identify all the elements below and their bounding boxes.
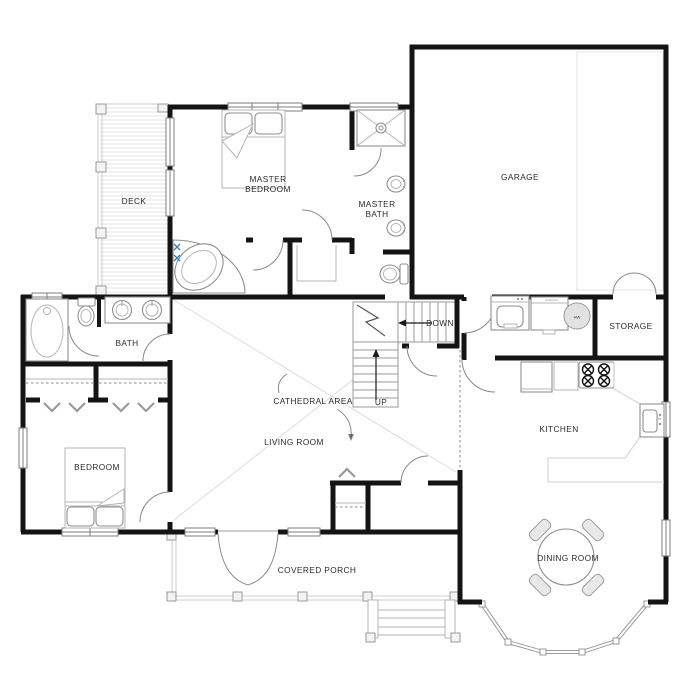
water-heater-label: HW [574,315,581,320]
door-arc [462,359,495,392]
room-label-storage: STORAGE [609,321,652,331]
room-label-kitchen: KITCHEN [539,424,578,434]
toilet-icon [380,264,408,284]
door-arc [248,533,278,585]
deck-post [96,228,106,238]
room-label-bath: BATH [115,338,138,348]
shower-icon [357,110,405,146]
porch-steps [366,600,460,642]
room-label-master-bath-1: MASTER [359,199,396,209]
door-arc [218,533,248,585]
room-label-master-bath-2: BATH [365,209,388,219]
porch-post [167,592,176,601]
window [62,528,118,536]
room-label-garage: GARAGE [501,172,539,182]
door-arc [140,492,170,522]
door-arc [253,240,283,270]
room-label-cathedral-area: CATHEDRAL AREA [273,396,352,406]
vanity-sinks-icon [105,297,170,323]
door-arc [634,273,656,294]
curved-arrow-icon [278,374,287,393]
wall-segment [23,364,170,400]
room-label-dining-room: DINING ROOM [537,553,599,563]
door-arc [302,210,332,240]
deck-post [96,162,106,172]
refrigerator-icon [521,362,552,392]
bathtub-icon [26,299,68,361]
stairs-up-label: UP [375,397,387,407]
room-label-deck: DECK [122,196,147,206]
window [662,520,670,556]
window [185,528,215,536]
stairs-down-label: DOWN [426,318,454,328]
porch-post [233,592,242,601]
room-label-master-bedroom-1: MASTER [250,174,287,184]
deck-post [158,104,168,112]
wall-segment [352,238,410,254]
whirlpool-tub-icon [166,234,245,300]
kitchen-sink-icon [640,404,664,437]
deck-post [96,104,106,114]
curved-arrow-icon [337,409,351,438]
bay-window [479,601,650,655]
closet-rod-icon [339,469,355,477]
living-closet [335,469,366,507]
room-label-bedroom: BEDROOM [74,462,120,472]
floor-plan-page: HW DECK [0,0,700,700]
window [288,528,320,536]
hall-closet [297,245,336,281]
door-arc [354,148,381,176]
porch-post [298,592,307,601]
bed-icon [65,448,125,528]
closet-rod-icon [44,403,154,411]
room-label-living-room: LIVING ROOM [264,437,324,447]
garage-car-space [577,52,663,290]
room-label-covered-porch: COVERED PORCH [278,565,357,575]
water-heater-icon: HW [564,303,590,329]
door-arc [407,346,437,376]
toilet-icon [78,298,95,326]
dryer-icon [531,297,568,334]
stove-icon [579,362,614,388]
floor-plan-canvas: HW DECK [0,0,700,700]
washer-icon [491,296,529,330]
window [19,428,27,468]
counter-cabinet [554,362,578,390]
bathroom-sink-icon [387,176,405,192]
door-arc [613,273,634,294]
room-label-master-bedroom-2: BEDROOM [245,184,291,194]
door-arc [69,326,99,356]
door-arc [143,334,170,361]
bathroom-sink-icon [387,220,405,236]
door-arc [401,456,428,483]
